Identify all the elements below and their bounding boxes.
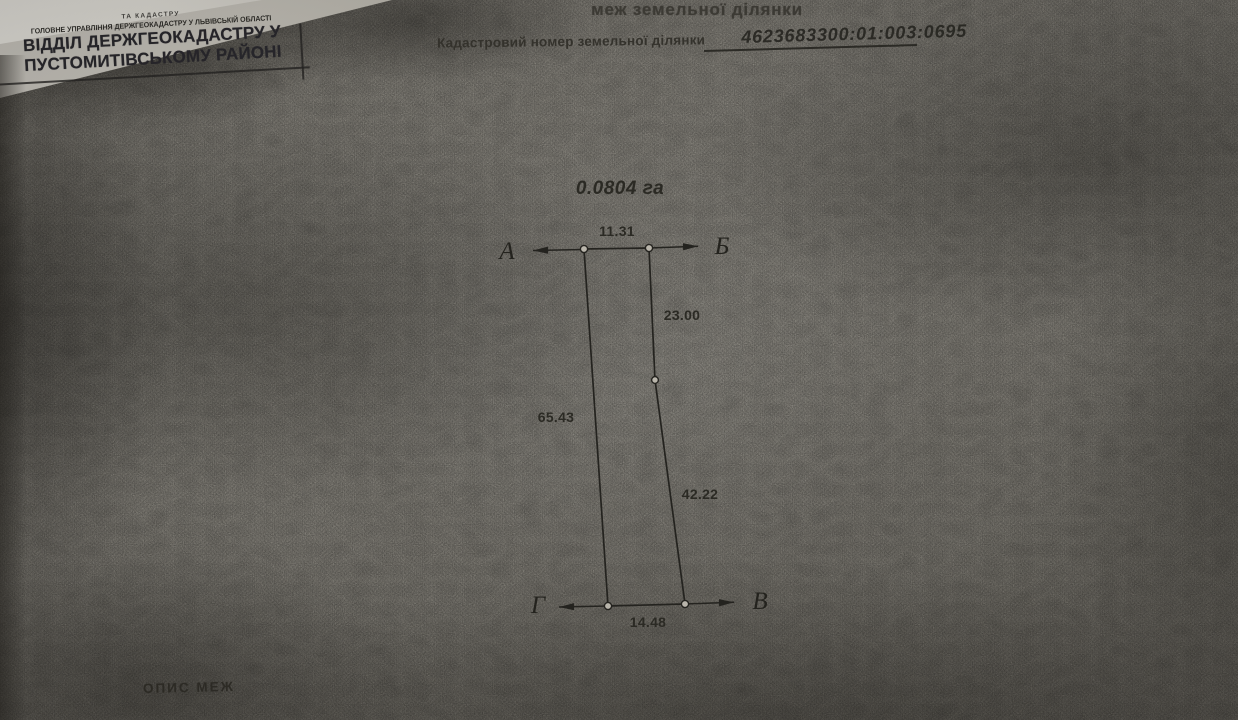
dimension-right-lower: 42.22 — [682, 486, 719, 502]
photo-vignette — [0, 0, 1238, 720]
arrow-to-point-v — [685, 602, 734, 604]
boundary-point-top-left — [580, 245, 587, 252]
parcel-outline — [584, 248, 685, 606]
cadastral-number-label: Кадастровий номер земельної ділянки — [437, 32, 705, 50]
arrow-to-point-g — [559, 606, 608, 607]
boundary-point-top-right — [645, 244, 652, 251]
vertex-label-v: В — [752, 588, 767, 616]
boundary-point-bottom-right — [681, 600, 688, 607]
paper-grain-texture — [0, 0, 1238, 720]
stamp-right-border — [299, 24, 305, 80]
cadastral-number-value: 4623683300:01:003:0695 — [741, 21, 967, 48]
guilloche-hatch-overlay — [0, 0, 1238, 720]
parcel-plan-drawing — [0, 0, 1238, 720]
boundary-point-bottom-left — [604, 602, 611, 609]
photographed-cadastral-document: ТА КАДАСТРУ ГОЛОВНЕ УПРАВЛІННЯ ДЕРЖГЕОКА… — [0, 0, 1238, 720]
boundaries-description-heading: ОПИС МЕЖ — [143, 679, 235, 696]
document-title-fragment: меж земельної ділянки — [591, 0, 803, 20]
page-left-edge-shadow — [0, 55, 26, 720]
parcel-area-label: 0.0804 га — [576, 178, 664, 200]
boundary-point-mid-right — [652, 377, 659, 384]
vertex-label-a: А — [499, 238, 514, 266]
vertex-label-g: Г — [531, 592, 545, 620]
dimension-left-side: 65.43 — [538, 409, 575, 425]
boundary-point-markers — [580, 244, 688, 609]
dimension-top-side: 11.31 — [599, 223, 635, 239]
dimension-bottom-side: 14.48 — [630, 614, 667, 630]
photo-shading — [0, 0, 1238, 720]
dimension-right-upper: 23.00 — [664, 307, 701, 323]
arrow-to-point-a — [533, 250, 584, 251]
arrow-to-point-b — [649, 246, 698, 248]
geocadastre-office-stamp: ТА КАДАСТРУ ГОЛОВНЕ УПРАВЛІННЯ ДЕРЖГЕОКА… — [5, 4, 300, 77]
direction-arrows — [533, 246, 734, 607]
vertex-label-b: Б — [715, 233, 730, 261]
